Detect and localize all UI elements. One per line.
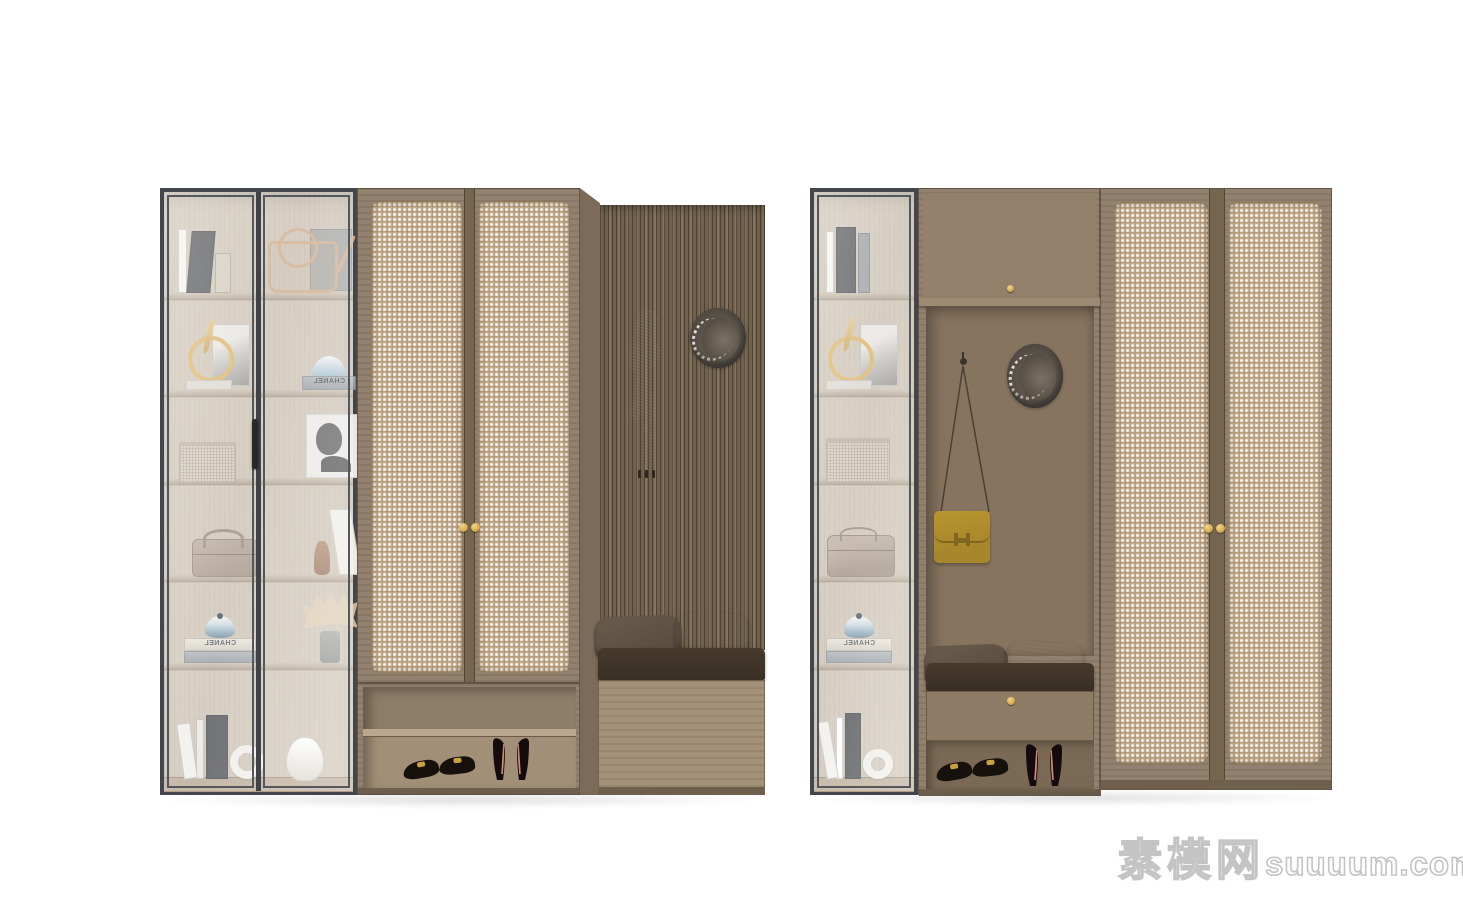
bag-strap xyxy=(936,364,996,516)
drawer xyxy=(926,691,1094,741)
middle-section xyxy=(918,188,1100,795)
flat-shoe xyxy=(935,760,973,783)
round-hat xyxy=(1007,344,1063,408)
rattan-wardrobe-left xyxy=(357,188,580,683)
floor-shadow xyxy=(150,792,775,808)
high-heels xyxy=(1022,741,1066,789)
glass-display-cabinet-left: CHANEL CHANEL xyxy=(160,188,357,795)
floor-shadow xyxy=(798,790,1346,806)
recess-interior xyxy=(363,687,576,789)
coat-area-left xyxy=(580,188,765,795)
coat-niche xyxy=(926,306,1094,656)
glass-door-frame xyxy=(817,195,911,788)
door-knob xyxy=(471,523,480,532)
center-stile xyxy=(256,192,261,791)
watermark: 素模网suuuum.com xyxy=(1118,824,1463,888)
upper-cabinet-door xyxy=(923,193,1097,296)
glass-door-frame xyxy=(263,195,350,788)
door-knob xyxy=(1216,524,1225,533)
rattan-door xyxy=(478,201,570,673)
bench-cushion xyxy=(926,663,1094,691)
bench-base xyxy=(598,680,765,795)
watermark-domain: suuuum.com xyxy=(1265,845,1463,883)
scene-canvas: CHANEL CHANEL xyxy=(0,0,1463,900)
door-knob xyxy=(459,523,468,532)
plinth xyxy=(1101,780,1331,789)
glass-door-frame xyxy=(167,195,254,788)
glass-display-cabinet-right: CHANEL xyxy=(810,188,918,795)
flat-shoe xyxy=(402,758,440,781)
rattan-wardrobe-right xyxy=(1100,188,1332,790)
flat-shoe xyxy=(438,755,476,776)
door-stile xyxy=(464,189,475,682)
recess-upper-shadow xyxy=(363,687,576,729)
right-unit: CHANEL xyxy=(810,188,1332,795)
door-handle xyxy=(252,419,258,469)
high-heels xyxy=(489,735,533,783)
h-clasp-bar xyxy=(957,538,967,541)
flat-shoes xyxy=(403,751,485,785)
side-panel xyxy=(580,188,600,795)
left-unit: CHANEL CHANEL xyxy=(160,188,765,800)
cabinet-knob xyxy=(1007,285,1014,292)
rattan-door xyxy=(1228,202,1322,764)
shoe-recess-left xyxy=(357,683,580,795)
ledge xyxy=(919,298,1101,306)
door-knob xyxy=(1204,524,1213,533)
flat-shoes xyxy=(936,753,1018,787)
drawer-knob xyxy=(1007,697,1015,705)
yellow-bag xyxy=(934,511,990,563)
rattan-door xyxy=(1114,202,1208,764)
slat-back-panel xyxy=(600,205,765,650)
watermark-site-name: 素模网 xyxy=(1118,824,1265,888)
shoe-shelf xyxy=(363,729,576,736)
door-stile xyxy=(1209,189,1225,789)
round-hat xyxy=(690,308,746,368)
bench-cushion xyxy=(598,648,765,680)
scarf-tassels xyxy=(638,470,655,478)
flat-shoe xyxy=(971,757,1009,778)
shoe-niche xyxy=(926,741,1094,789)
rattan-door xyxy=(371,201,463,673)
